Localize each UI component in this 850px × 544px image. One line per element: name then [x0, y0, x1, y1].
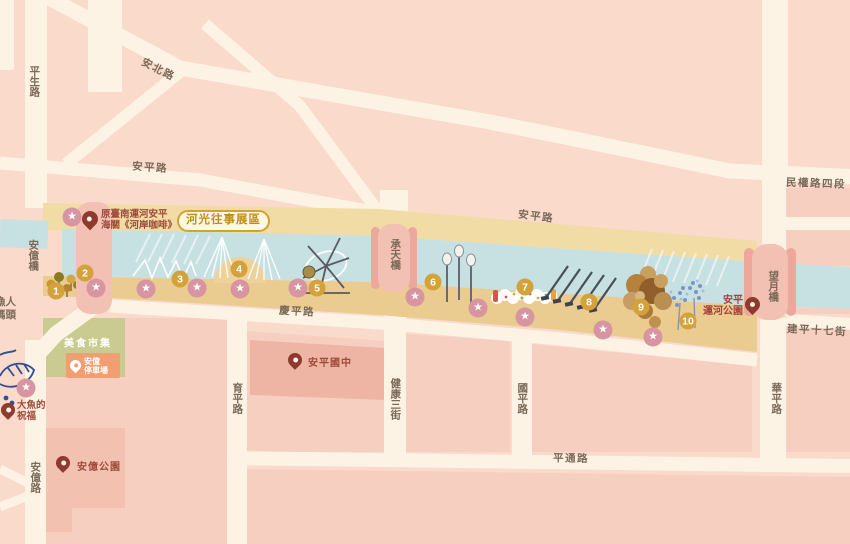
artwork-marker-1[interactable]: 1 — [48, 283, 65, 300]
road-label: 華平路 — [771, 382, 782, 414]
school-label: 安平國中 — [308, 354, 352, 369]
road-label: 育平路 — [232, 382, 243, 414]
road-label: 承天橋 — [390, 238, 401, 270]
star-marker[interactable]: ★ — [289, 279, 308, 298]
star-marker[interactable]: ★ — [231, 280, 250, 299]
road-label: 安北路 — [140, 57, 177, 83]
artwork-marker-3[interactable]: 3 — [172, 271, 189, 288]
food-market-label: 美食市集 — [64, 335, 112, 350]
road-label: 平通路 — [553, 453, 589, 464]
canal-park-label: 安平 運河公園 — [701, 296, 743, 317]
artwork-marker-6[interactable]: 6 — [425, 274, 442, 291]
anyi-park-label: 安億公園 — [77, 458, 121, 473]
big-fish-label: 大魚的 祝福 — [17, 400, 46, 422]
star-marker[interactable]: ★ — [188, 279, 207, 298]
star-marker[interactable]: ★ — [406, 288, 425, 307]
road-label: 安平路 — [517, 210, 554, 225]
road-label: 國平路 — [517, 382, 528, 414]
road-label: 慶平路 — [279, 306, 316, 318]
road-label: 健康三街 — [390, 378, 401, 420]
wharf-label: 漁人 碼頭 — [0, 296, 21, 322]
school-pin[interactable] — [285, 350, 305, 370]
road-label: 平生路 — [29, 65, 40, 97]
star-marker[interactable]: ★ — [469, 299, 488, 318]
artwork-marker-7[interactable]: 7 — [517, 279, 534, 296]
star-marker[interactable]: ★ — [17, 379, 36, 398]
star-marker[interactable]: ★ — [87, 279, 106, 298]
parking-label: 安億 停車場 — [84, 357, 108, 375]
parking-lot[interactable]: 安億 停車場 — [66, 353, 120, 378]
canal-park-pin[interactable] — [742, 294, 763, 315]
star-marker[interactable]: ★ — [594, 321, 613, 340]
artwork-marker-10[interactable]: 10 — [680, 313, 697, 330]
star-marker[interactable]: ★ — [63, 208, 82, 227]
artwork-marker-8[interactable]: 8 — [581, 294, 598, 311]
anyi-park-pin[interactable] — [53, 453, 73, 473]
artwork-marker-5[interactable]: 5 — [309, 280, 326, 297]
artwork-marker-9[interactable]: 9 — [633, 299, 650, 316]
star-marker[interactable]: ★ — [644, 328, 663, 347]
road-label: 安平路 — [132, 162, 169, 175]
big-fish-pin[interactable] — [0, 400, 18, 420]
road-label: 望月橋 — [768, 270, 779, 302]
star-marker[interactable]: ★ — [516, 308, 535, 327]
parking-pin-icon — [68, 358, 84, 374]
anping-canal-map: 河光往事展區 原臺南運河安平 海關《河岸咖啡》 美食市集 安億 停車場 安平國中… — [0, 0, 850, 544]
map-overlay: 河光往事展區 原臺南運河安平 海關《河岸咖啡》 美食市集 安億 停車場 安平國中… — [0, 0, 850, 544]
road-label: 安億橋 — [28, 239, 39, 271]
road-label: 建平十七街 — [787, 324, 847, 338]
road-label: 安億路 — [30, 461, 41, 493]
exhibition-zone-badge[interactable]: 河光往事展區 — [177, 210, 270, 232]
star-marker[interactable]: ★ — [137, 280, 156, 299]
road-label: 民權路四段 — [786, 178, 846, 191]
coffee-house-pin[interactable] — [79, 208, 102, 231]
artwork-marker-4[interactable]: 4 — [231, 261, 248, 278]
coffee-house-label: 原臺南運河安平 海關《河岸咖啡》 — [101, 209, 177, 231]
